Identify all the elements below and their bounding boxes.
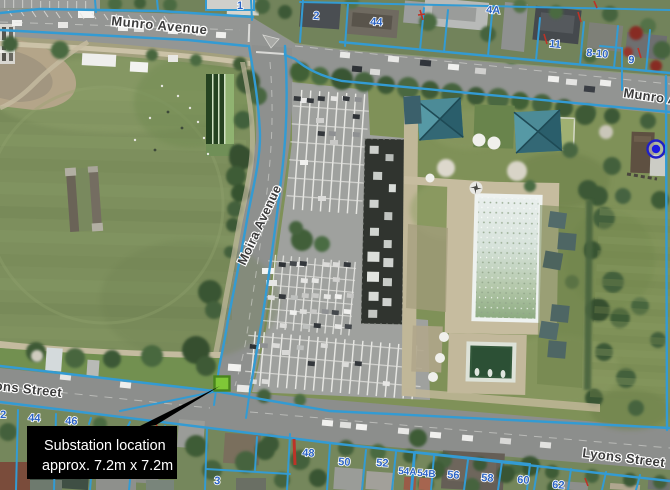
svg-text:44: 44 [28,412,42,425]
svg-text:1: 1 [237,0,243,12]
svg-text:62: 62 [552,479,565,490]
svg-text:46: 46 [65,415,78,428]
svg-text:60: 60 [517,474,530,487]
svg-text:52: 52 [376,457,389,470]
svg-text:44: 44 [370,16,384,29]
svg-text:Substation location: Substation location [44,438,166,454]
svg-text:54A: 54A [398,466,417,478]
svg-text:8-10: 8-10 [586,47,609,61]
svg-text:50: 50 [338,456,351,469]
svg-text:54B: 54B [417,468,436,480]
svg-text:approx. 7.2m x 7.2m: approx. 7.2m x 7.2m [42,458,173,474]
svg-text:42: 42 [0,409,6,421]
svg-text:56: 56 [447,469,460,482]
svg-text:48: 48 [302,447,315,460]
svg-text:4A: 4A [486,4,501,17]
svg-text:9: 9 [628,54,635,66]
svg-text:3: 3 [214,475,221,487]
svg-text:11: 11 [549,38,562,51]
svg-text:2: 2 [313,10,320,22]
svg-text:58: 58 [481,472,494,485]
